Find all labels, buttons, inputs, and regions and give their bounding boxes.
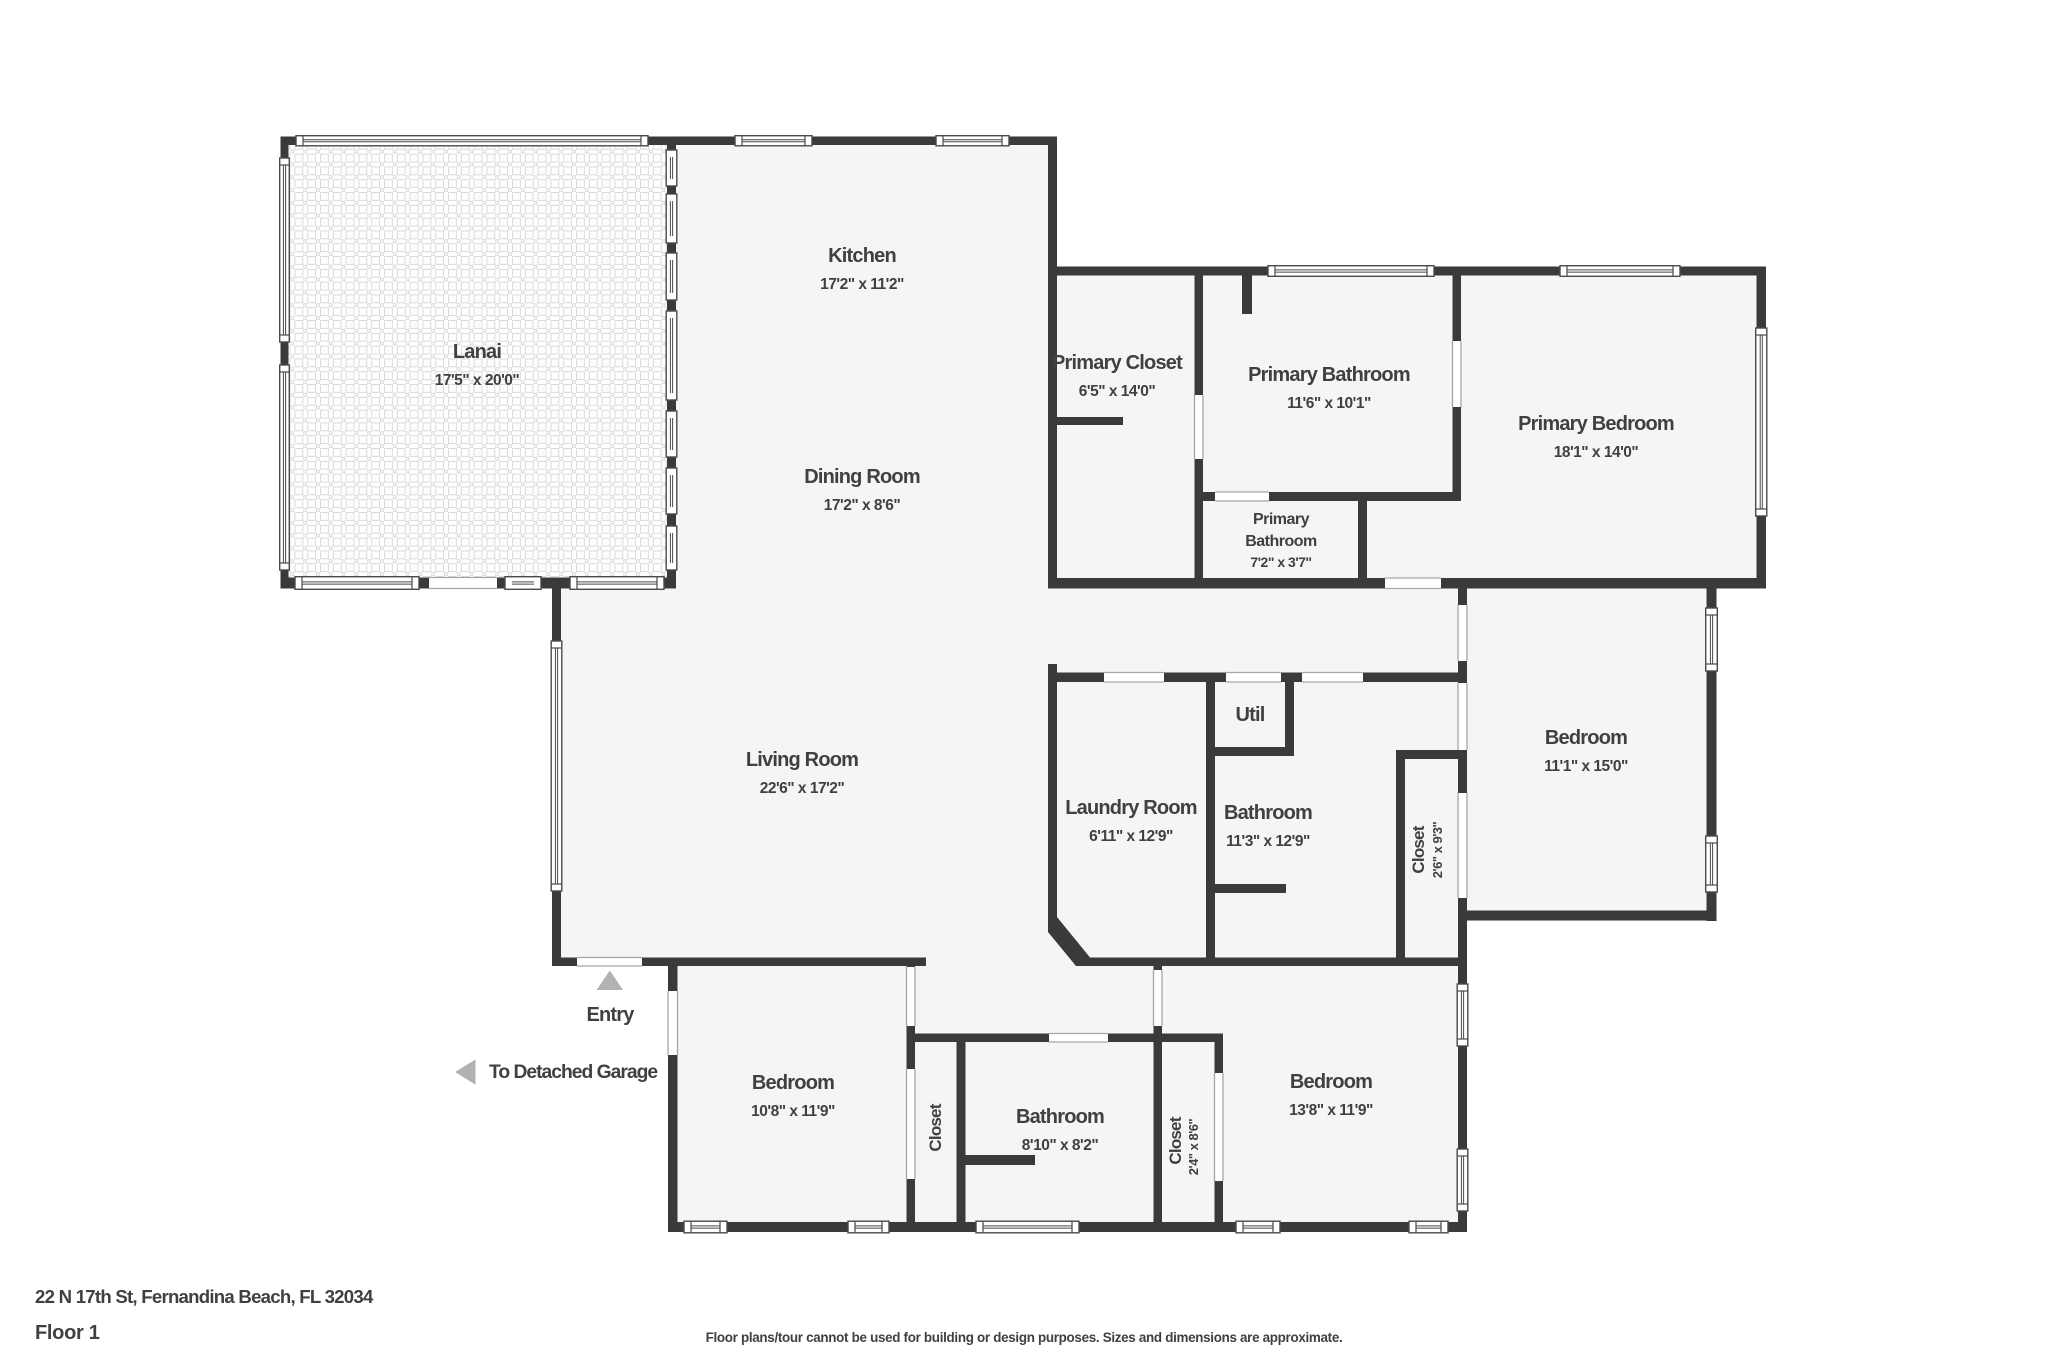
svg-text:11'6" x 10'1": 11'6" x 10'1" (1287, 395, 1371, 412)
svg-text:11'3" x 12'9": 11'3" x 12'9" (1226, 833, 1310, 850)
svg-text:Kitchen: Kitchen (828, 245, 896, 267)
svg-text:13'8" x 11'9": 13'8" x 11'9" (1289, 1102, 1373, 1119)
svg-text:11'1" x 15'0": 11'1" x 15'0" (1544, 758, 1628, 775)
svg-text:Primary Bedroom: Primary Bedroom (1518, 413, 1674, 435)
svg-text:Living Room: Living Room (746, 749, 858, 771)
svg-text:22 N 17th St, Fernandina Beach: 22 N 17th St, Fernandina Beach, FL 32034 (35, 1286, 374, 1307)
svg-text:Floor plans/tour cannot be use: Floor plans/tour cannot be used for buil… (706, 1330, 1343, 1345)
svg-text:Bedroom: Bedroom (1545, 727, 1627, 749)
svg-text:Primary Bathroom: Primary Bathroom (1248, 364, 1410, 386)
svg-text:22'6" x 17'2": 22'6" x 17'2" (760, 780, 845, 797)
svg-text:Closet: Closet (926, 1103, 945, 1151)
svg-text:Bathroom: Bathroom (1224, 802, 1312, 824)
svg-text:8'10" x 8'2": 8'10" x 8'2" (1022, 1137, 1099, 1154)
svg-text:6'5" x 14'0": 6'5" x 14'0" (1079, 383, 1156, 400)
svg-text:7'2" x 3'7": 7'2" x 3'7" (1250, 554, 1311, 570)
svg-text:Entry: Entry (586, 1004, 635, 1026)
svg-text:17'5" x 20'0": 17'5" x 20'0" (435, 372, 520, 389)
svg-text:Primary: Primary (1253, 511, 1310, 528)
svg-text:2'4" x 8'6": 2'4" x 8'6" (1186, 1118, 1201, 1175)
svg-text:6'11" x 12'9": 6'11" x 12'9" (1089, 828, 1173, 845)
svg-text:Primary Closet: Primary Closet (1052, 352, 1183, 374)
svg-text:17'2" x 8'6": 17'2" x 8'6" (824, 497, 901, 514)
svg-text:Util: Util (1235, 704, 1264, 726)
svg-text:Bedroom: Bedroom (752, 1072, 834, 1094)
svg-text:17'2" x 11'2": 17'2" x 11'2" (820, 276, 904, 293)
svg-text:Lanai: Lanai (453, 341, 501, 363)
svg-text:10'8" x 11'9": 10'8" x 11'9" (751, 1103, 835, 1120)
svg-text:To Detached Garage: To Detached Garage (489, 1062, 658, 1083)
svg-text:Floor 1: Floor 1 (35, 1322, 100, 1344)
svg-text:Bathroom: Bathroom (1245, 533, 1317, 550)
svg-text:Dining Room: Dining Room (804, 466, 920, 488)
svg-text:Bathroom: Bathroom (1016, 1106, 1104, 1128)
svg-text:Closet: Closet (1409, 825, 1428, 873)
svg-text:18'1" x 14'0": 18'1" x 14'0" (1554, 444, 1639, 461)
svg-text:2'6" x 9'3": 2'6" x 9'3" (1430, 821, 1445, 878)
svg-text:Closet: Closet (1166, 1116, 1185, 1164)
svg-text:Laundry Room: Laundry Room (1065, 797, 1197, 819)
svg-text:Bedroom: Bedroom (1290, 1071, 1372, 1093)
